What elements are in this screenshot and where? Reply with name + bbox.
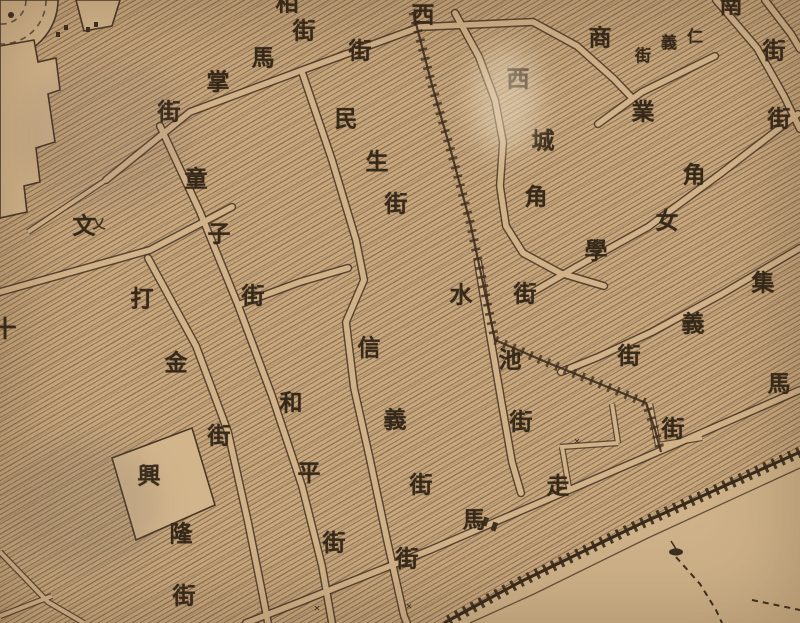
street-char-nan-jie: 街 bbox=[763, 40, 786, 63]
street-char-jiyi-jie: 義 bbox=[682, 313, 705, 336]
street-char-top-edge-street: 相 bbox=[276, 0, 299, 15]
street-char-shuichi-jie: 水 bbox=[450, 284, 473, 307]
street-char-xicheng-jiao: 角 bbox=[525, 186, 548, 209]
street-char-shangye-jiao: 業 bbox=[632, 101, 655, 124]
street-char-tongzi-jie: 街 bbox=[242, 285, 265, 308]
street-char-xinglong-jie: 街 bbox=[173, 585, 196, 608]
street-char-nvxue-jie: 女 bbox=[656, 210, 679, 233]
street-char-right-edge-jie: 街 bbox=[768, 108, 791, 131]
street-char-shuichi-jie: 池 bbox=[499, 349, 522, 372]
street-char-renyi-jie: 義 bbox=[661, 36, 677, 52]
street-char-zouma-jie: 馬 bbox=[463, 509, 486, 532]
street-char-mazhang-jie: 街 bbox=[158, 101, 181, 124]
street-char-renyi-jie: 仁 bbox=[687, 30, 703, 46]
street-char-jiyi-jie: 集 bbox=[752, 272, 775, 295]
street-char-nvxue-jie: 街 bbox=[514, 283, 537, 306]
street-char-zouma-jie: 走 bbox=[547, 475, 570, 498]
street-char-ma-jie: 馬 bbox=[768, 373, 791, 396]
street-char-ma-jie: 街 bbox=[662, 418, 685, 441]
street-char-tongzi-jie: 童 bbox=[185, 168, 208, 191]
street-char-mazhang-jie: 掌 bbox=[207, 71, 230, 94]
street-char-heping-jie: 平 bbox=[298, 462, 321, 485]
junction-mark: × bbox=[574, 435, 581, 447]
street-char-xinyi-jie: 義 bbox=[384, 409, 407, 432]
junction-mark: × bbox=[406, 600, 413, 612]
street-labels-layer: 馬掌街相街西街民生街西城角商業角仁義街南街街女學街水池街集義街馬街走馬街文打金街… bbox=[0, 0, 800, 623]
junction-mark: × bbox=[314, 602, 321, 614]
street-char-minsheng-jie: 街 bbox=[385, 193, 408, 216]
street-char-heping-jie: 和 bbox=[280, 392, 303, 415]
street-char-tongzi-jie: 子 bbox=[208, 223, 231, 246]
street-char-dajin-jie: 打 bbox=[131, 288, 154, 311]
street-char-xi-jie: 街 bbox=[349, 40, 372, 63]
street-char-dajin-jie: 街 bbox=[208, 425, 231, 448]
street-char-xinyi-jie: 信 bbox=[358, 337, 381, 360]
street-char-xinglong-jie: 隆 bbox=[170, 523, 193, 546]
street-char-shangye-jiao: 角 bbox=[683, 164, 706, 187]
street-char-xinglong-jie: 興 bbox=[138, 465, 161, 488]
street-char-nan-jie: 南 bbox=[720, 0, 743, 17]
street-char-shuichi-jie: 街 bbox=[510, 411, 533, 434]
junction-mark: 乂 bbox=[92, 218, 105, 231]
antique-street-map: 馬掌街相街西街民生街西城角商業角仁義街南街街女學街水池街集義街馬街走馬街文打金街… bbox=[0, 0, 800, 623]
street-char-wen-label: 文 bbox=[73, 215, 96, 238]
street-char-minsheng-jie: 生 bbox=[366, 151, 389, 174]
street-char-xi-jie: 西 bbox=[412, 4, 435, 27]
street-char-heping-jie: 街 bbox=[323, 532, 346, 555]
street-char-zouma-jie: 街 bbox=[396, 548, 419, 571]
street-char-left-edge-partial: 十 bbox=[0, 318, 17, 341]
street-char-shangye-jiao: 商 bbox=[589, 27, 612, 50]
street-char-xinyi-jie: 街 bbox=[410, 474, 433, 497]
street-char-xicheng-jiao: 城 bbox=[532, 130, 555, 153]
street-char-mazhang-jie: 馬 bbox=[252, 47, 275, 70]
street-char-dajin-jie: 金 bbox=[165, 352, 188, 375]
street-char-renyi-jie: 街 bbox=[635, 49, 651, 65]
street-char-top-edge-street: 街 bbox=[293, 20, 316, 43]
street-char-jiyi-jie: 街 bbox=[618, 345, 641, 368]
street-char-xicheng-jiao: 西 bbox=[507, 68, 530, 91]
street-char-minsheng-jie: 民 bbox=[335, 108, 358, 131]
street-char-nvxue-jie: 學 bbox=[585, 240, 608, 263]
